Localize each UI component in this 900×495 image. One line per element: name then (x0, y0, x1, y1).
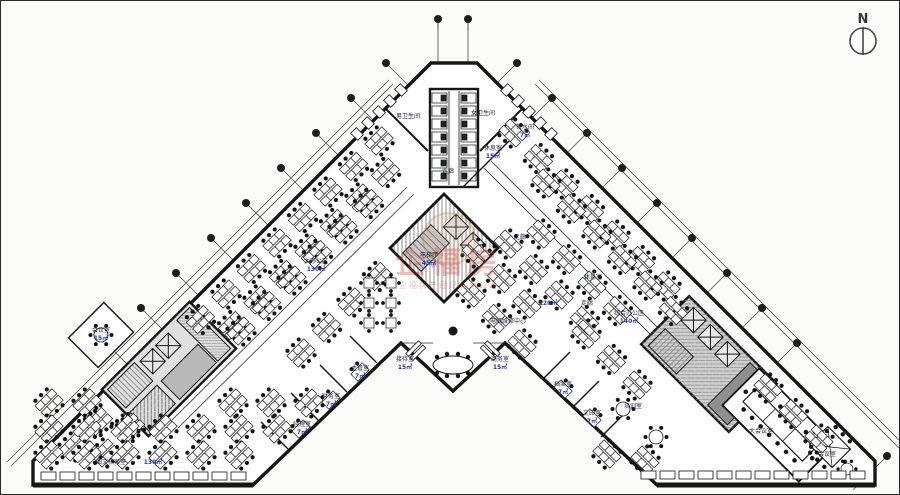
floorplan-image: 企福房 企福房产经纪有限公司 N 男卫生间女卫生间休息室15㎡茶水间7㎡走廊电梯… (0, 0, 900, 495)
area-label: 45㎡ (422, 259, 436, 267)
area-label: 7㎡ (587, 417, 597, 425)
watermark-text-sub: 企福房产经纪有限公司 (399, 280, 499, 290)
room-label: 培训室 (624, 402, 642, 410)
room-label: 电脑维修中心 (490, 317, 526, 325)
area-label: 7㎡ (355, 372, 365, 380)
room-label: 走廊 (442, 167, 454, 175)
room-label: 休息室 (484, 144, 502, 152)
room-label: 大办公区 (304, 257, 328, 265)
room-label: 走廊 (581, 299, 593, 307)
area-label: 120㎡ (539, 299, 558, 307)
room-label: 经理室 (293, 420, 311, 428)
room-label: 财务室 (322, 392, 340, 400)
room-label: 休息室 (584, 273, 602, 281)
area-label: 7㎡ (520, 131, 530, 139)
area-label: 7㎡ (558, 388, 568, 396)
floorplan-svg: 企福房 企福房产经纪有限公司 N 男卫生间女卫生间休息室15㎡茶水间7㎡走廊电梯… (1, 1, 899, 494)
area-label: 15㎡ (486, 152, 500, 160)
room-label: 图文档案室 (96, 458, 126, 466)
area-label: 140㎡ (620, 317, 639, 325)
room-label: 主管室 (351, 364, 369, 372)
room-label: 男卫生间 (396, 112, 420, 120)
area-label: 130㎡ (307, 265, 326, 273)
room-label: 商务室 (491, 355, 509, 363)
area-label: 15㎡ (493, 363, 507, 371)
area-label: 130㎡ (144, 458, 163, 466)
area-label: 7㎡ (297, 428, 307, 436)
lobby-column (449, 327, 458, 336)
room-label: 女卫生间 (471, 109, 495, 117)
room-label: 大会议室 (749, 427, 773, 435)
room-label: 综合办公区 (614, 309, 644, 317)
area-label: 15㎡ (94, 334, 108, 342)
room-label: 接待室 (396, 355, 414, 363)
room-label: 走廊 (514, 233, 526, 241)
room-label: 茶水间 (516, 123, 534, 131)
room-label: 文印室 (583, 409, 601, 417)
area-label: 15㎡ (398, 363, 412, 371)
room-label: 会议室 (92, 326, 110, 334)
room-label: 电梯厅 (420, 251, 438, 259)
room-label: 档案室 (554, 380, 572, 388)
north-arrow: N (850, 12, 876, 55)
area-label: 7㎡ (326, 400, 336, 408)
wall-counters (41, 471, 865, 480)
north-label: N (858, 12, 869, 27)
room-label: 会议室 (818, 450, 836, 458)
watermark-text-main: 企福房 (395, 246, 503, 281)
